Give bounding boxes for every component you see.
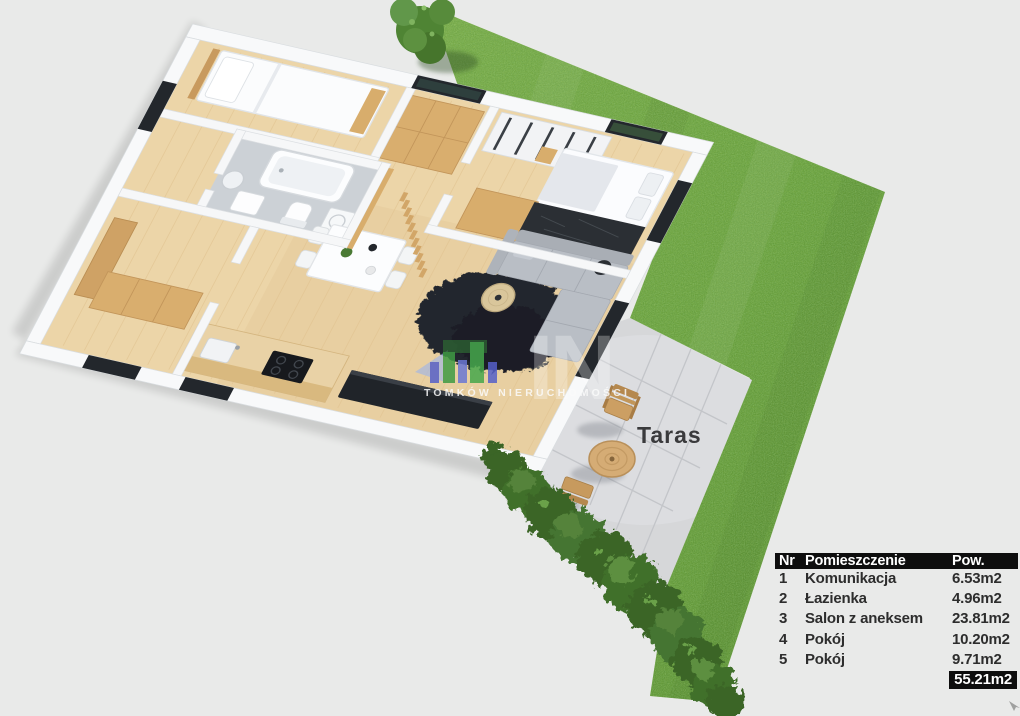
legend-total: 55.21m2	[775, 671, 1018, 689]
legend-row: 4 Pokój 10.20m2	[775, 630, 1018, 650]
legend-row: 2 Łazienka 4.96m2	[775, 589, 1018, 609]
floorplan-render: IN TOMKÓW NIERUCHOMOŚCI Taras Nr Pomiesz…	[0, 0, 1020, 716]
terrace-table	[589, 441, 635, 477]
legend-row: 1 Komunikacja 6.53m2	[775, 569, 1018, 589]
chair-shadow	[577, 422, 623, 438]
legend-header: Nr Pomieszczenie Pow.	[775, 553, 1018, 569]
legend-row: 5 Pokój 9.71m2	[775, 650, 1018, 670]
legend-row: 3 Salon z aneksem 23.81m2	[775, 609, 1018, 629]
watermark-monogram: IN	[528, 317, 612, 419]
watermark-brand: TOMKÓW NIERUCHOMOŚCI	[424, 386, 630, 399]
legend-header-nr: Nr	[779, 553, 805, 569]
legend-header-room: Pomieszczenie	[805, 553, 952, 569]
room-legend: Nr Pomieszczenie Pow. 1 Komunikacja 6.53…	[775, 553, 1018, 689]
taras-label: Taras	[637, 422, 702, 448]
legend-header-area: Pow.	[952, 553, 1018, 569]
total-area-badge: 55.21m2	[949, 671, 1017, 689]
